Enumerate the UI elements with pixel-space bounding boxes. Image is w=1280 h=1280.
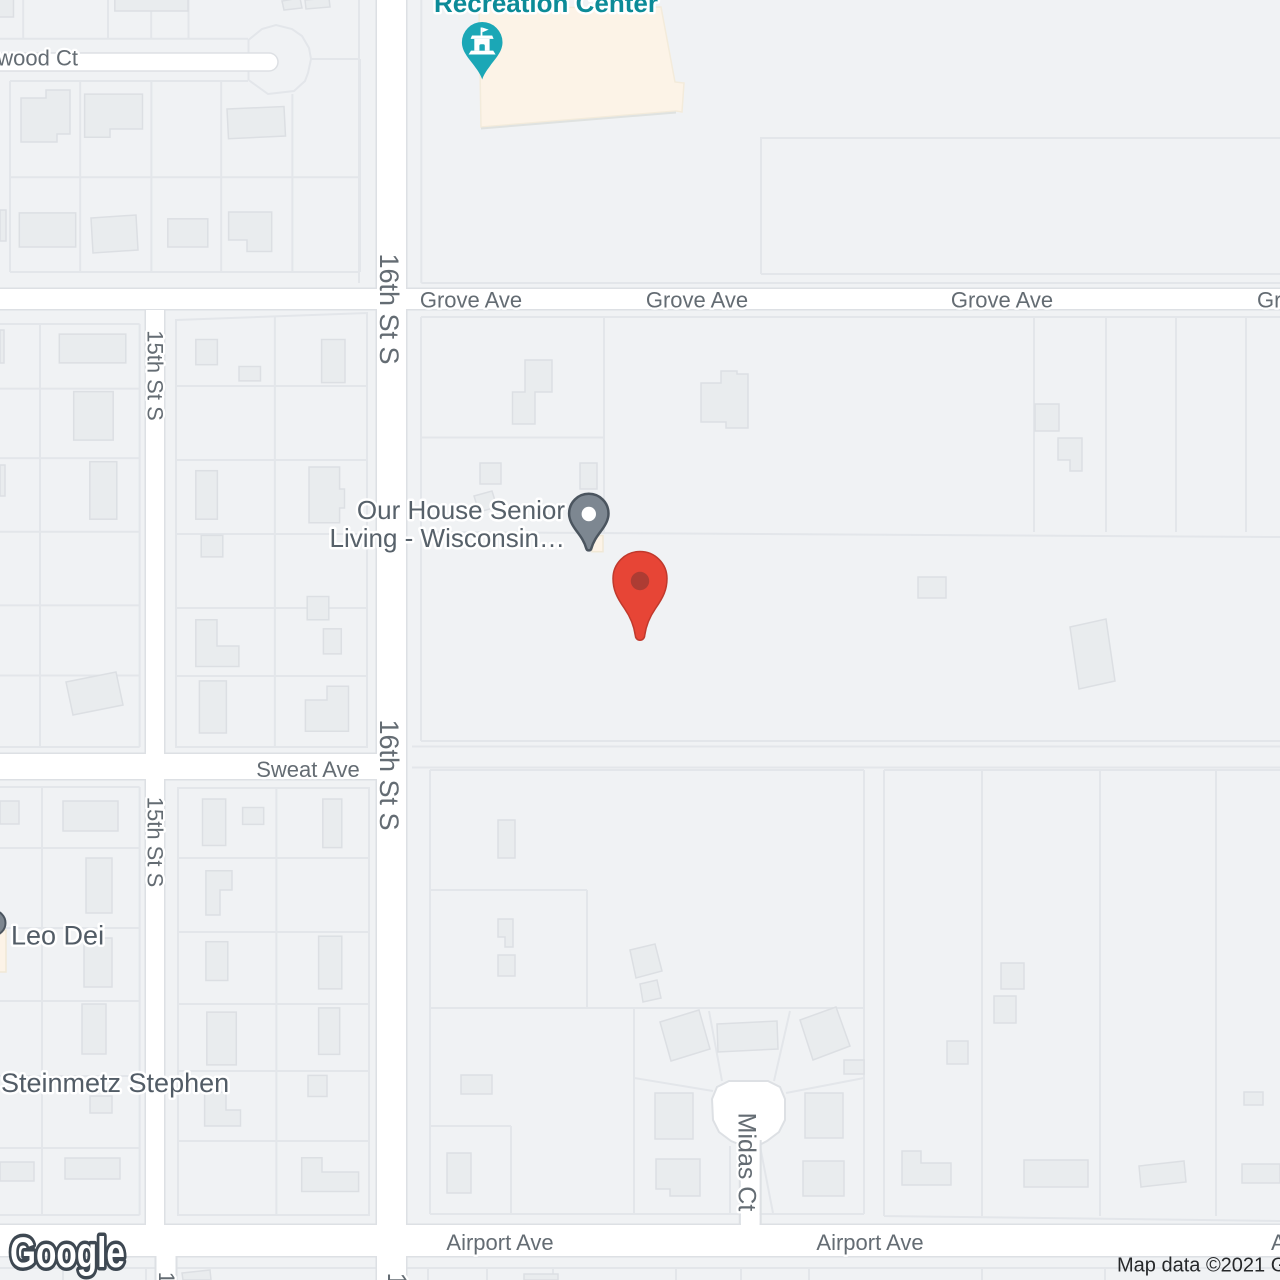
svg-text:Sweat Ave: Sweat Ave xyxy=(256,757,360,782)
svg-text:Living - Wisconsin…: Living - Wisconsin… xyxy=(329,523,565,553)
svg-text:Recreation Center: Recreation Center xyxy=(434,0,658,18)
svg-text:15th St S: 15th St S xyxy=(143,797,168,888)
svg-text:Grove Ave: Grove Ave xyxy=(646,288,748,313)
svg-text:Grove Ave: Grove Ave xyxy=(1257,288,1280,313)
svg-text:Airport Ave: Airport Ave xyxy=(446,1230,553,1255)
svg-text:Grove Ave: Grove Ave xyxy=(420,288,522,313)
svg-text:16th St S: 16th St S xyxy=(374,719,404,830)
svg-text:Airport Ave: Airport Ave xyxy=(1271,1230,1280,1255)
svg-text:Our House Senior: Our House Senior xyxy=(357,495,565,525)
svg-text:16th St S: 16th St S xyxy=(382,1272,412,1280)
svg-text:Map data ©2021 Goo: Map data ©2021 Goo xyxy=(1117,1255,1280,1277)
svg-text:Grove Ave: Grove Ave xyxy=(951,288,1053,313)
svg-text:16th St S: 16th St S xyxy=(374,253,404,364)
svg-text:15th St S: 15th St S xyxy=(154,1272,179,1280)
svg-text:wood Ct: wood Ct xyxy=(0,46,78,71)
svg-text:15th St S: 15th St S xyxy=(143,330,168,421)
svg-text:Airport Ave: Airport Ave xyxy=(816,1230,923,1255)
svg-text:Steinmetz Stephen: Steinmetz Stephen xyxy=(1,1068,229,1098)
svg-text:Google: Google xyxy=(10,1229,125,1277)
svg-text:Midas Ct: Midas Ct xyxy=(733,1113,761,1212)
svg-text:Leo Dei: Leo Dei xyxy=(11,921,104,951)
